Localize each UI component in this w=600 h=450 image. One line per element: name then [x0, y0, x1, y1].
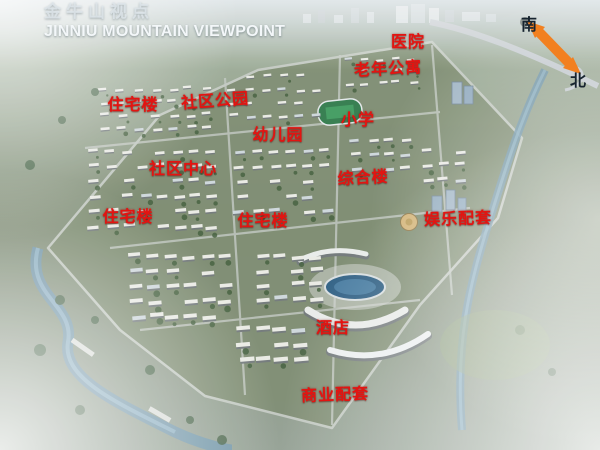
map-label-kindergarten: 幼儿园	[252, 121, 303, 145]
map-label-residential-building-2: 住宅楼	[102, 203, 153, 227]
map-label-senior-apartments: 老年公寓	[353, 53, 422, 81]
aerial-masterplan-view: 金牛山视点 JINNIU MOUNTAIN VIEWPOINT 南 北 医院 老…	[0, 0, 600, 450]
map-label-hospital: 医院	[391, 28, 425, 52]
map-label-residential-building-3: 住宅楼	[237, 207, 288, 231]
viewpoint-title: 金牛山视点 JINNIU MOUNTAIN VIEWPOINT	[44, 3, 285, 40]
map-label-primary-school: 小学	[341, 106, 375, 130]
map-label-residential-building-1: 住宅楼	[107, 91, 158, 115]
viewpoint-title-zh: 金牛山视点	[44, 3, 285, 22]
map-label-commercial-facilities: 商业配套	[301, 380, 370, 406]
map-label-community-park: 社区公园	[180, 85, 250, 114]
map-label-mixed-use-building: 综合楼	[337, 163, 389, 190]
viewpoint-title-en: JINNIU MOUNTAIN VIEWPOINT	[44, 23, 285, 41]
map-label-community-center: 社区中心	[149, 155, 217, 179]
map-label-entertainment-facilities: 娱乐配套	[424, 204, 493, 230]
map-label-hotel: 酒店	[316, 314, 350, 338]
